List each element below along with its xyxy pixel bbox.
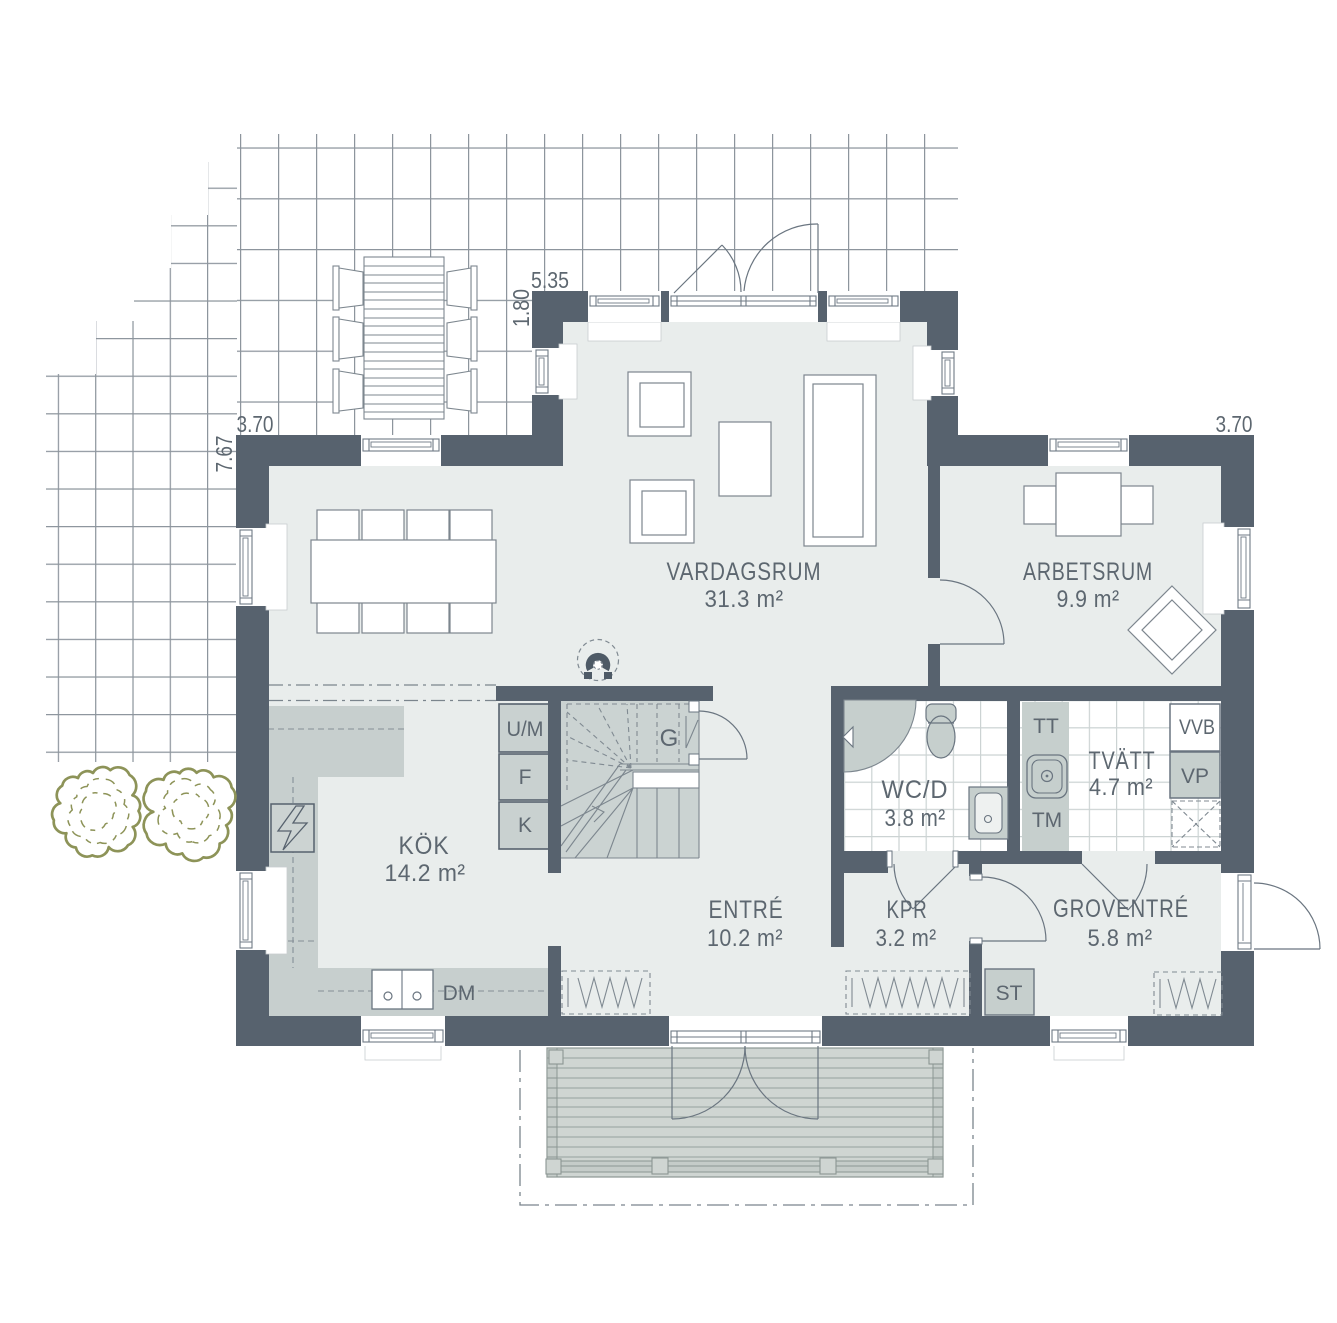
svg-text:4.7 m²: 4.7 m² — [1089, 774, 1153, 801]
svg-text:K: K — [518, 814, 532, 837]
svg-text:TT: TT — [1033, 715, 1059, 738]
svg-text:TVÄTT: TVÄTT — [1089, 747, 1156, 775]
svg-text:3.8 m²: 3.8 m² — [885, 805, 946, 832]
svg-text:ST: ST — [996, 982, 1023, 1005]
svg-text:9.9 m²: 9.9 m² — [1057, 586, 1120, 613]
svg-text:3.70: 3.70 — [1216, 411, 1253, 437]
svg-text:5.8 m²: 5.8 m² — [1088, 925, 1153, 952]
svg-text:3.2 m²: 3.2 m² — [876, 925, 937, 952]
svg-text:VARDAGSRUM: VARDAGSRUM — [667, 558, 822, 586]
svg-text:10.2 m²: 10.2 m² — [707, 925, 783, 952]
svg-text:3.70: 3.70 — [237, 411, 274, 437]
svg-text:G: G — [660, 725, 679, 752]
svg-text:GROVENTRÉ: GROVENTRÉ — [1053, 894, 1189, 923]
svg-text:F: F — [519, 766, 532, 789]
svg-text:5.35: 5.35 — [531, 267, 569, 293]
svg-text:VVB: VVB — [1179, 716, 1215, 739]
svg-text:VP: VP — [1181, 765, 1209, 788]
svg-text:TM: TM — [1032, 809, 1062, 832]
svg-text:1.80: 1.80 — [508, 289, 534, 327]
svg-text:14.2 m²: 14.2 m² — [385, 860, 466, 887]
svg-text:DM: DM — [443, 982, 476, 1005]
svg-text:ARBETSRUM: ARBETSRUM — [1023, 558, 1153, 586]
svg-text:U/M: U/M — [507, 718, 544, 741]
svg-text:ENTRÉ: ENTRÉ — [709, 895, 784, 924]
svg-text:KPR: KPR — [887, 896, 928, 924]
svg-text:KÖK: KÖK — [399, 832, 450, 860]
svg-text:7.67: 7.67 — [211, 436, 237, 473]
svg-text:WC/D: WC/D — [882, 776, 949, 804]
svg-text:31.3 m²: 31.3 m² — [705, 586, 784, 613]
